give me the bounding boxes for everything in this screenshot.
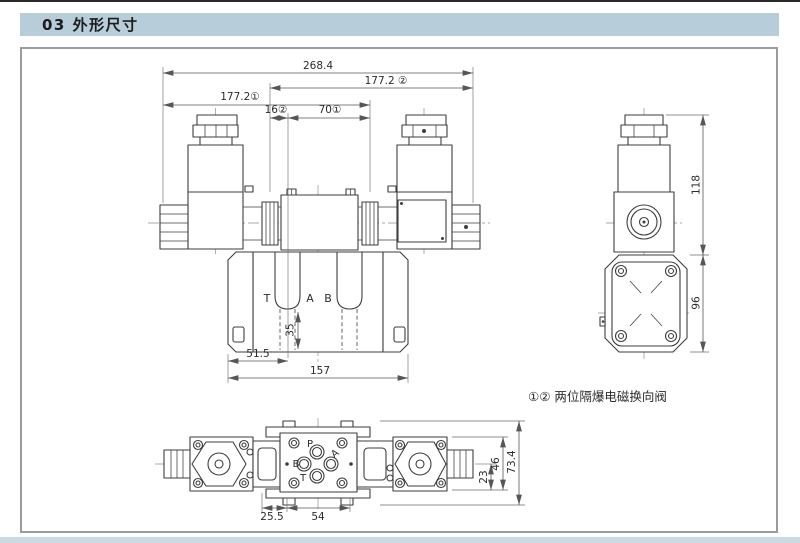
top-rule: [0, 0, 800, 2]
technical-drawing: T A B 268.4 177.2 ② 177.2① 16② 7: [21, 48, 778, 531]
side-view: 118 96: [598, 108, 709, 362]
dim-spacing: 70①: [319, 104, 342, 116]
dim-total-height: 73.4: [506, 450, 518, 474]
front-port-t-label: T: [263, 292, 271, 305]
front-right-end-cap: [452, 205, 480, 249]
dim-flange-height: 96: [691, 296, 703, 310]
dim-plate-height: 46: [490, 457, 502, 471]
front-valve-body: [281, 195, 358, 250]
section-header: 03 外形尺寸: [20, 13, 779, 36]
dim-height: 118: [691, 175, 703, 195]
bottom-port-b-label: B: [293, 459, 300, 470]
side-tube-face: [614, 192, 674, 252]
catalog-page: 03 外形尺寸: [0, 0, 800, 543]
bottom-view: P A B T: [155, 418, 525, 523]
front-view: T A B 268.4 177.2 ② 177.2① 16② 7: [148, 60, 490, 383]
section-title: 03 外形尺寸: [20, 14, 139, 35]
front-port-a-label: A: [306, 292, 314, 305]
dim-body-width: 157: [310, 365, 330, 377]
dim-span-right: 177.2 ②: [365, 75, 408, 87]
front-left-coil: [188, 145, 243, 192]
dim-center-to-edge: 23: [478, 470, 490, 483]
dim-offset-bottom: 25.5: [260, 511, 283, 523]
side-flange: [600, 255, 687, 352]
front-port-b-label: B: [324, 292, 332, 305]
front-subplate: T A B: [228, 252, 408, 352]
dim-spacing-bottom: 54: [311, 511, 325, 523]
dim-span-left: 177.2①: [220, 91, 259, 103]
front-right-solenoid: [397, 115, 480, 249]
bottom-right-plate: [393, 437, 447, 491]
front-left-solenoid: [160, 115, 243, 249]
front-right-tube-nut: [362, 202, 378, 245]
side-coil: [618, 145, 670, 192]
bottom-left-plate: [190, 437, 253, 491]
footer-rule: [0, 537, 800, 543]
bottom-port-p-label: P: [307, 439, 313, 450]
bottom-right-connector: [357, 441, 393, 487]
front-left-end-cap: [160, 205, 188, 249]
dim-total-width: 268.4: [303, 60, 333, 72]
dim-offset: 16②: [265, 104, 288, 116]
bottom-port-t-label: T: [299, 473, 307, 484]
bottom-left-gland: [164, 450, 190, 478]
bottom-right-gland: [447, 450, 473, 478]
front-left-tube-nut: [262, 202, 278, 245]
side-cable-gland: [621, 115, 667, 145]
bottom-port-plate: P A B T: [280, 433, 357, 492]
dim-port-depth: 35: [285, 323, 297, 336]
front-right-gland-dot: [422, 129, 426, 133]
dim-mount-offset: 51.5: [246, 348, 269, 360]
front-right-coil: [397, 145, 452, 192]
drawing-note: ①② 两位隔爆电磁换向阀: [528, 389, 667, 404]
